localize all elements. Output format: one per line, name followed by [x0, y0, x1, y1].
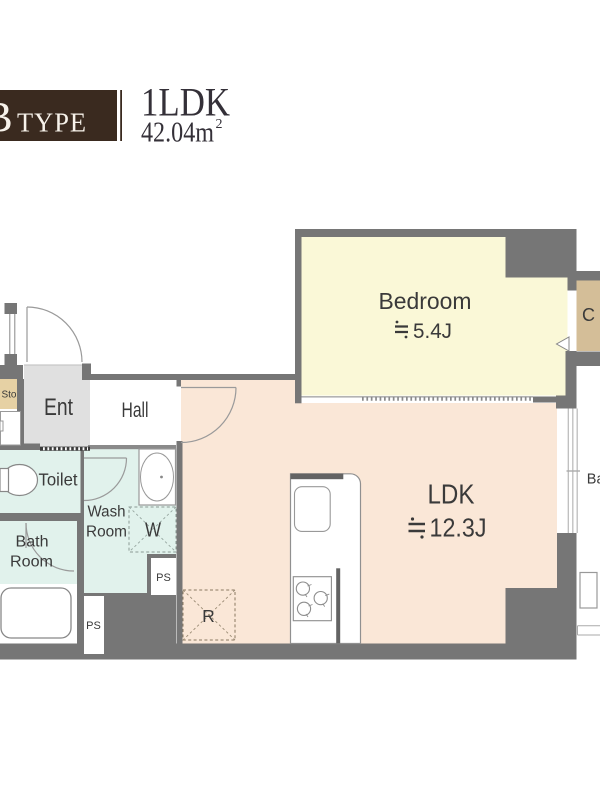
svg-text:Room: Room — [10, 554, 53, 571]
svg-text:PS: PS — [86, 620, 101, 632]
svg-text:2: 2 — [216, 117, 223, 132]
svg-text:12.3J: 12.3J — [430, 513, 487, 543]
svg-text:Bath: Bath — [16, 534, 49, 551]
svg-text:Bedroom: Bedroom — [379, 288, 472, 314]
svg-text:Balcony: Balcony — [587, 472, 600, 488]
svg-text:Wash: Wash — [88, 504, 126, 521]
svg-text:42.04m: 42.04m — [141, 117, 214, 148]
svg-text:C: C — [582, 305, 595, 325]
svg-text:Toilet: Toilet — [39, 470, 78, 490]
svg-text:LDK: LDK — [428, 478, 475, 509]
svg-text:5.4J: 5.4J — [413, 320, 452, 343]
svg-text:PS: PS — [156, 572, 171, 584]
svg-text:W: W — [145, 520, 161, 542]
svg-text:B: B — [0, 95, 13, 142]
svg-text:Room: Room — [86, 524, 127, 541]
svg-text:Hall: Hall — [122, 399, 149, 422]
svg-text:R: R — [202, 606, 215, 626]
svg-text:Ent: Ent — [44, 394, 73, 421]
svg-text:Sto: Sto — [1, 390, 16, 401]
svg-text:TYPE: TYPE — [17, 108, 87, 138]
